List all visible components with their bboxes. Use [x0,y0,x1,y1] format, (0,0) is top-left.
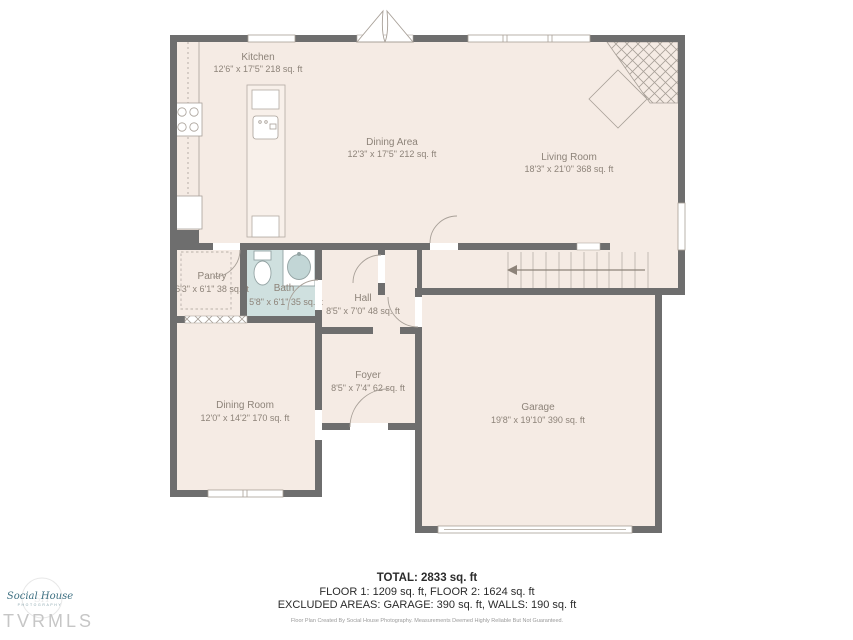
floor-plan-svg: Kitchen 12'6" x 17'5" 218 sq. ft Dining … [0,0,853,640]
room-dims-bath: 5'8" x 6'1" 35 sq. ft [249,297,323,307]
excluded-areas-text: EXCLUDED AREAS: GARAGE: 390 sq. ft, WALL… [278,599,577,611]
summary-block: TOTAL: 2833 sq. ft FLOOR 1: 1209 sq. ft,… [278,572,577,624]
toilet-tank [254,251,271,260]
wall-segment [415,288,685,295]
faucet-handle-icon [270,124,276,129]
room-label-living-room: Living Room [541,152,597,163]
door-opening-bath [315,280,322,310]
island-counter [252,90,279,109]
front-door-opening [350,423,388,430]
floor-areas-text: FLOOR 1: 1209 sq. ft, FLOOR 2: 1624 sq. … [319,586,534,598]
room-label-bath: Bath [274,283,295,294]
room-dims-garage: 19'8" x 19'10" 390 sq. ft [491,415,585,425]
window [208,490,283,497]
logo: SH Social House PHOTOGRAPHY TVRMLS [3,578,94,631]
logo-mls-text: TVRMLS [3,611,94,631]
room-label-dining-room: Dining Room [216,400,274,411]
sink-faucet-dot [298,253,301,256]
wall-segment [240,243,247,323]
disclaimer-text: Floor Plan Created By Social House Photo… [291,618,564,624]
room-dims-living-room: 18'3" x 21'0" 368 sq. ft [525,164,614,174]
wall-segment [170,35,177,497]
room-dims-pantry: 6'3" x 6'1" 38 sq. ft [175,284,249,294]
door-opening-closet [378,255,385,283]
floor-hall-foyer [322,243,422,430]
window [468,35,590,42]
total-area-text: TOTAL: 2833 sq. ft [377,572,478,584]
window [248,35,295,42]
room-label-pantry: Pantry [198,271,227,282]
island-cabinet [252,216,279,237]
bath-fixtures [254,249,315,286]
room-label-foyer: Foyer [355,370,381,381]
wall-segment [177,230,199,245]
logo-script-text: Social House [7,591,73,602]
french-door-swing-right [385,11,413,42]
room-dims-foyer: 8'5" x 7'4" 62 sq. ft [331,383,405,393]
room-dims-dining-room: 12'0" x 14'2" 170 sq. ft [201,413,290,423]
sink-basin [288,255,311,280]
wall-segment [417,250,422,290]
wall-segment [170,35,685,42]
room-label-dining-area: Dining Area [366,137,418,148]
wall-segment [322,327,373,334]
door-opening-garage [415,297,422,327]
room-dims-dining-area: 12'3" x 17'5" 212 sq. ft [348,149,437,159]
stove [175,103,202,136]
french-door-swing-left [357,11,385,42]
room-label-garage: Garage [521,402,555,413]
pantry-dining-opening-hatch [185,316,247,323]
door-opening-pantry [213,243,240,250]
room-dims-hall: 8'5" x 7'0" 48 sq. ft [326,306,400,316]
toilet-bowl [254,261,271,285]
cased-opening-stairs [577,243,600,250]
floor-plan-page: Kitchen 12'6" x 17'5" 218 sq. ft Dining … [0,0,853,640]
logo-sub-text: PHOTOGRAPHY [18,603,63,607]
room-dims-kitchen: 12'6" x 17'5" 218 sq. ft [214,64,303,74]
room-label-kitchen: Kitchen [241,52,274,63]
wall-segment [315,323,322,410]
dining-foyer-opening [315,410,322,440]
wall-segment [655,295,662,533]
door-opening-hall-dining [430,243,458,250]
wall-segment [315,440,322,497]
wall-segment [678,35,685,295]
window [678,203,685,250]
room-label-hall: Hall [354,293,371,304]
fridge [174,196,202,229]
